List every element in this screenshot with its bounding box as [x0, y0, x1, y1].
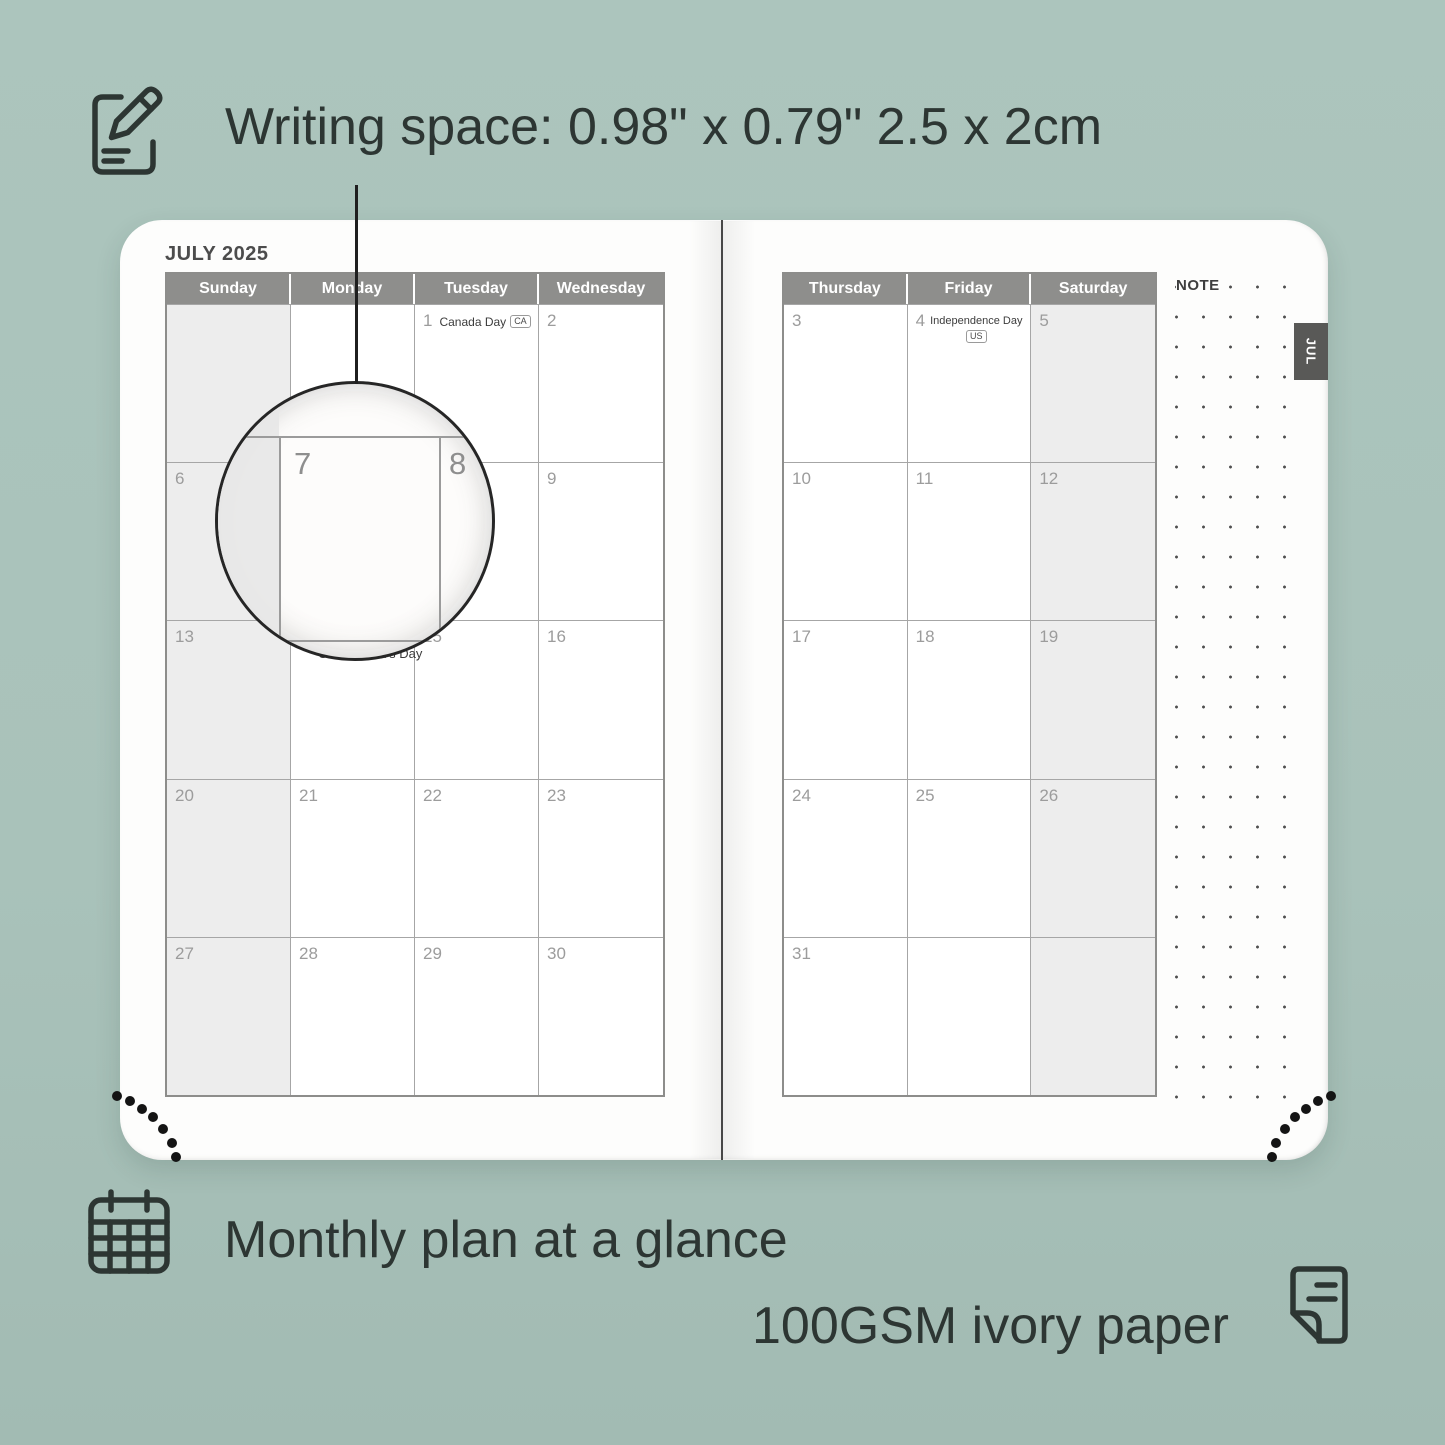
calendar-cell: 25 [908, 779, 1032, 937]
day-header: Tuesday [415, 274, 539, 304]
spine-shading-right [723, 221, 755, 1159]
writing-space-text: Writing space: 0.98" x 0.79" 2.5 x 2cm [225, 97, 1102, 157]
calendar-cell: 19 [1031, 620, 1155, 778]
calendar-cell: 3 [784, 304, 908, 462]
corner-dots-left [105, 1085, 195, 1170]
day-header: Sunday [167, 274, 291, 304]
magnified-gridline [279, 640, 441, 642]
day-header: Thursday [784, 274, 908, 304]
calendar-cell: 9 [539, 462, 663, 620]
magnified-gridline [279, 436, 281, 661]
day-header: Wednesday [539, 274, 663, 304]
calendar-cell: 22 [415, 779, 539, 937]
calendar-cell: 18 [908, 620, 1032, 778]
calendar-right-page: Thursday Friday Saturday 3 4 Independenc… [782, 272, 1157, 1097]
monthly-plan-text: Monthly plan at a glance [224, 1210, 788, 1270]
calendar-cell: 10 [784, 462, 908, 620]
calendar-cell: 5 [1031, 304, 1155, 462]
calendar-cell: 28 [291, 937, 415, 1095]
leader-line [355, 185, 358, 384]
calendar-cell: 2 [539, 304, 663, 462]
calendar-cell: 24 [784, 779, 908, 937]
note-pencil-icon [87, 80, 165, 178]
magnified-day-number: 8 [449, 446, 466, 482]
magnified-gridline [218, 436, 492, 438]
holiday-badge: US [966, 330, 987, 343]
calendar-cell: 27 [167, 937, 291, 1095]
magnified-day-number: 7 [294, 446, 311, 482]
day-number: 4 [916, 312, 925, 330]
magnifier-circle: 7 8 [215, 381, 495, 661]
corner-dots-right [1253, 1085, 1343, 1170]
calendar-body: 3 4 Independence Day US 5 10 11 12 17 18… [784, 304, 1155, 1095]
day-header: Saturday [1031, 274, 1155, 304]
holiday-badge: CA [510, 315, 531, 328]
day-header: Monday [291, 274, 415, 304]
paper-text: 100GSM ivory paper [752, 1296, 1229, 1356]
calendar-cell: 29 [415, 937, 539, 1095]
calendar-cell [1031, 937, 1155, 1095]
holiday-label: Independence Day [930, 312, 1022, 328]
calendar-cell: 30 [539, 937, 663, 1095]
note-label: NOTE [1176, 277, 1226, 296]
calendar-cell: 21 [291, 779, 415, 937]
day-number: 1 [423, 312, 432, 330]
magnified-gridline [439, 436, 441, 642]
calendar-cell: 23 [539, 779, 663, 937]
calendar-cell: 17 [784, 620, 908, 778]
paper-icon [1278, 1262, 1360, 1348]
spine [721, 220, 723, 1160]
holiday-label: Canada Day [439, 312, 506, 329]
calendar-cell [908, 937, 1032, 1095]
day-header: Friday [908, 274, 1032, 304]
calendar-cell: 31 [784, 937, 908, 1095]
calendar-cell: 4 Independence Day US [908, 304, 1032, 462]
calendar-cell: 12 [1031, 462, 1155, 620]
month-tab: JUL [1294, 323, 1328, 380]
product-image: Writing space: 0.98" x 0.79" 2.5 x 2cm J… [0, 0, 1445, 1445]
calendar-icon [82, 1185, 176, 1279]
magnified-weekend-shading [218, 384, 279, 658]
day-header-row: Thursday Friday Saturday [784, 274, 1155, 304]
month-title: JULY 2025 [165, 243, 268, 266]
calendar-cell: 11 [908, 462, 1032, 620]
calendar-cell: 16 [539, 620, 663, 778]
calendar-cell: 15 [415, 620, 539, 778]
calendar-cell: 20 [167, 779, 291, 937]
calendar-cell: 26 [1031, 779, 1155, 937]
spine-shading-left [689, 221, 721, 1159]
day-header-row: Sunday Monday Tuesday Wednesday [167, 274, 663, 304]
note-dot-grid [1163, 272, 1298, 1112]
